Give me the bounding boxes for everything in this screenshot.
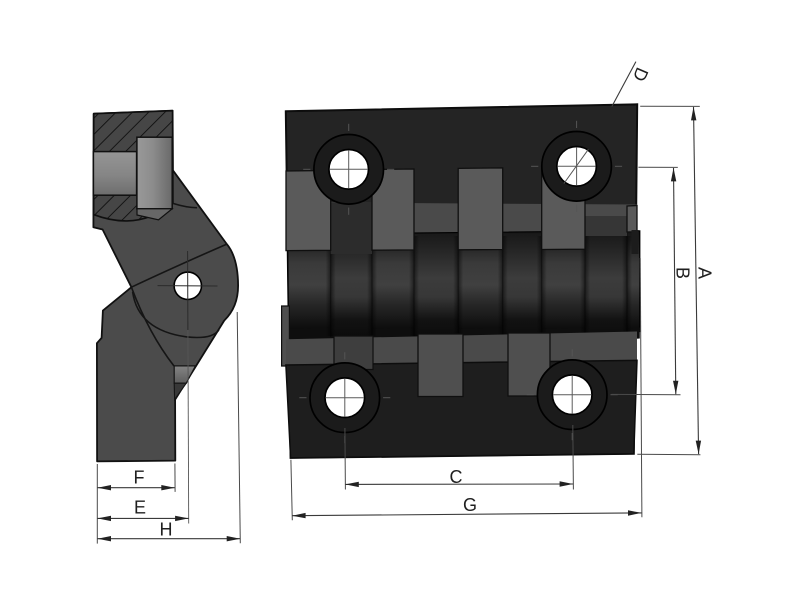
svg-text:H: H (160, 519, 173, 539)
svg-text:C: C (450, 467, 463, 487)
svg-text:E: E (134, 498, 146, 518)
svg-text:G: G (463, 495, 477, 515)
svg-text:A: A (695, 267, 715, 279)
svg-text:B: B (673, 267, 693, 279)
svg-text:F: F (134, 467, 145, 487)
